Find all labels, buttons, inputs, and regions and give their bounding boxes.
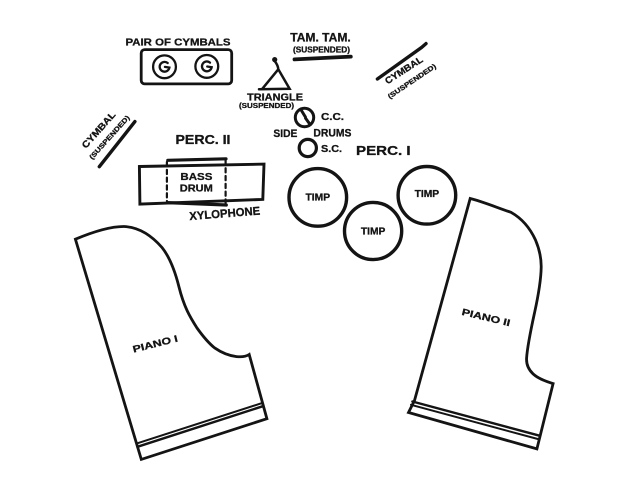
svg-text:PERC. II: PERC. II — [176, 132, 231, 147]
svg-text:BASS: BASS — [180, 171, 212, 183]
svg-text:TIMP: TIMP — [415, 189, 440, 200]
svg-text:TAM. TAM.: TAM. TAM. — [290, 30, 351, 44]
svg-text:(SUSPENDED): (SUSPENDED) — [239, 103, 294, 110]
svg-text:TIMP: TIMP — [306, 192, 331, 203]
svg-text:SIDE: SIDE — [273, 128, 297, 140]
svg-text:XYLOPHONE: XYLOPHONE — [189, 206, 261, 224]
svg-text:PIANO II: PIANO II — [461, 307, 512, 329]
svg-text:(SUSPENDED): (SUSPENDED) — [293, 45, 350, 54]
svg-text:TRIANGLE: TRIANGLE — [247, 92, 303, 103]
svg-text:S.C.: S.C. — [321, 144, 342, 155]
svg-text:PAIR OF CYMBALS: PAIR OF CYMBALS — [126, 37, 231, 49]
svg-text:TIMP: TIMP — [361, 227, 386, 238]
svg-text:PIANO I: PIANO I — [132, 334, 179, 356]
svg-text:DRUM: DRUM — [180, 182, 213, 194]
svg-text:C.C.: C.C. — [321, 112, 344, 123]
svg-text:DRUMS: DRUMS — [313, 128, 351, 140]
svg-text:PERC. I: PERC. I — [356, 143, 411, 158]
